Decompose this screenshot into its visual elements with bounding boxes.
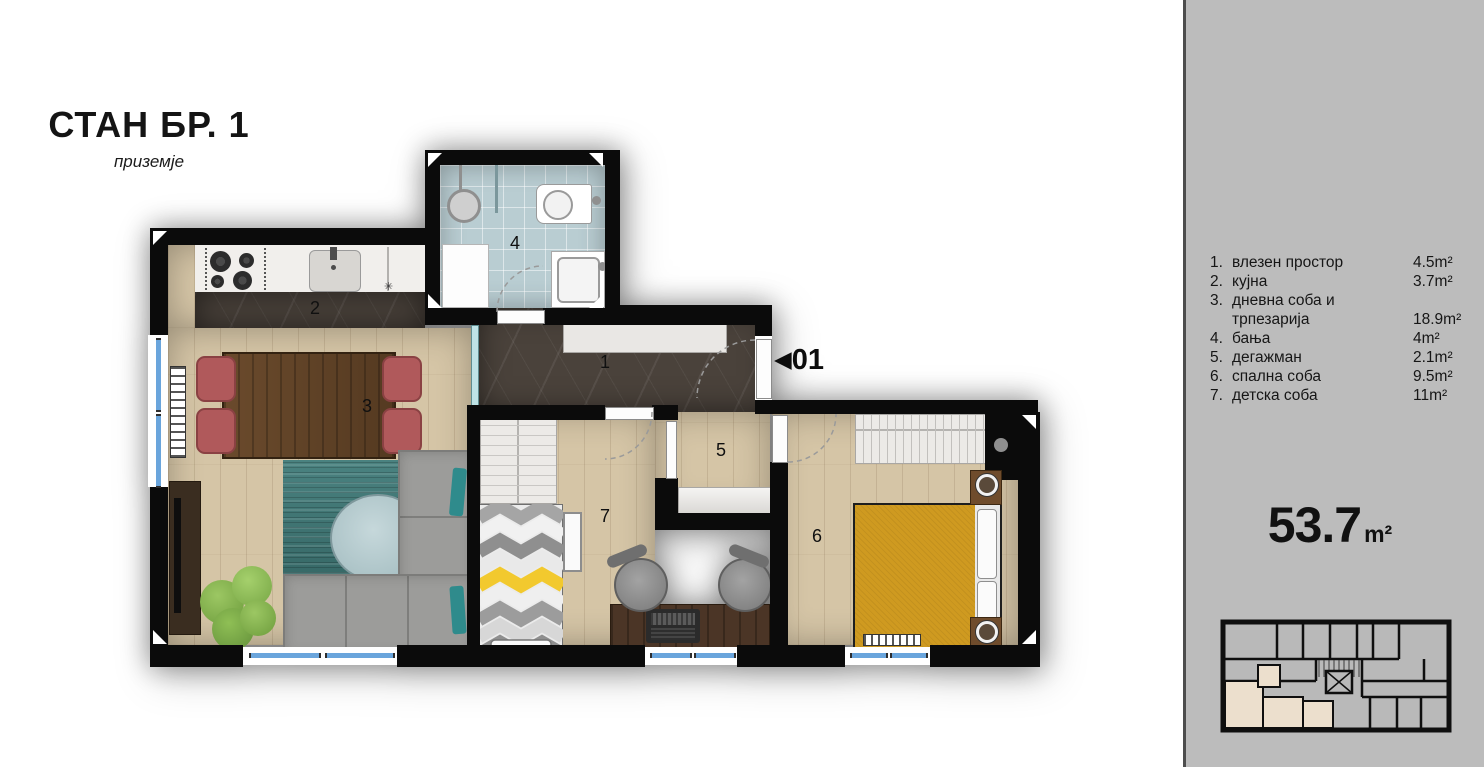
legend-no: 5. — [1210, 348, 1232, 367]
room-number-bedroom: 6 — [812, 526, 822, 547]
building-overview-map — [1220, 619, 1452, 733]
legend-area: 18.9m² — [1413, 310, 1461, 329]
room-number-kids: 7 — [600, 506, 610, 527]
legend-name: спална соба — [1232, 368, 1321, 385]
legend-row: 2.кујна 3.7m² — [1210, 272, 1460, 291]
legend-row: 3.дневна соба и — [1210, 291, 1460, 310]
legend-area: 4.5m² — [1413, 253, 1453, 272]
room-number-hallway: 5 — [716, 440, 726, 461]
apartment-title: СТАН БР. 1 — [6, 104, 292, 146]
legend-no: 1. — [1210, 253, 1232, 272]
floor-subtitle: приземје — [6, 152, 292, 172]
total-area: 53.7m² — [1210, 496, 1450, 554]
legend-area: 9.5m² — [1413, 367, 1453, 386]
legend-no: 4. — [1210, 329, 1232, 348]
total-area-unit: m² — [1364, 521, 1392, 547]
legend-name: детска соба — [1232, 387, 1318, 404]
legend-row: 1.влезен простор 4.5m² — [1210, 253, 1460, 272]
legend-row: 7.детска соба 11m² — [1210, 386, 1460, 405]
legend-row: 4.бања 4m² — [1210, 329, 1460, 348]
legend-name-cont: трпезарија — [1232, 311, 1309, 328]
legend-no: 6. — [1210, 367, 1232, 386]
legend-no: 2. — [1210, 272, 1232, 291]
entrance-label: 01 — [792, 344, 824, 376]
legend-row: 5.дегажман 2.1m² — [1210, 348, 1460, 367]
screenshot: ✳ — [0, 0, 1484, 767]
legend-name: влезен простор — [1232, 254, 1343, 271]
legend-row: 6.спална соба 9.5m² — [1210, 367, 1460, 386]
legend-area: 3.7m² — [1413, 272, 1453, 291]
legend-no: 7. — [1210, 386, 1232, 405]
room-number-entry: 1 — [600, 352, 610, 373]
room-number-bathroom: 4 — [510, 233, 520, 254]
legend-area: 2.1m² — [1413, 348, 1453, 367]
legend-name: бања — [1232, 330, 1270, 347]
total-area-value: 53.7 — [1268, 497, 1361, 553]
legend-area: 11m² — [1413, 386, 1447, 405]
room-legend: 1.влезен простор 4.5m² 2.кујна 3.7m² 3.д… — [1210, 253, 1460, 405]
entrance-arrow-icon: ◀ — [774, 346, 792, 372]
legend-name: дегажман — [1232, 349, 1302, 366]
room-number-kitchen: 2 — [310, 298, 320, 319]
room-number-living: 3 — [362, 396, 372, 417]
legend-no: 3. — [1210, 291, 1232, 310]
legend-row: трпезарија 18.9m² — [1210, 310, 1460, 329]
legend-name: кујна — [1232, 273, 1267, 290]
entrance-marker: ◀01 — [774, 344, 824, 377]
legend-area: 4m² — [1413, 329, 1440, 348]
legend-name: дневна соба и — [1232, 292, 1335, 309]
